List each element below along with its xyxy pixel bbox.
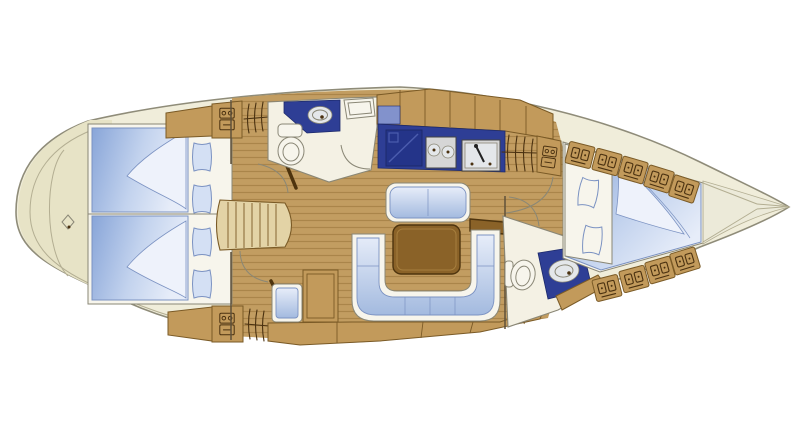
dining-table: [393, 225, 460, 274]
pillow: [581, 225, 603, 255]
drain-dot: [567, 271, 571, 275]
pillow: [193, 270, 212, 298]
washbasin: [308, 107, 332, 124]
aft-shelf-bottom: [168, 307, 212, 341]
galley-sink: [462, 140, 500, 171]
counter-return-panel: [378, 106, 400, 124]
icebox: [386, 130, 422, 166]
chart-table: [303, 270, 338, 322]
pillow: [193, 185, 212, 213]
stove: [426, 137, 456, 168]
yacht-layout-svg: [0, 0, 800, 446]
pillow: [193, 228, 212, 256]
pillow: [193, 143, 212, 171]
drain-dot: [320, 115, 324, 119]
yacht-layout-diagram: [0, 0, 800, 446]
toilet-tank: [278, 124, 302, 137]
nav-seat-cushion: [276, 288, 298, 318]
aft-dresser-bottom: [212, 306, 243, 342]
